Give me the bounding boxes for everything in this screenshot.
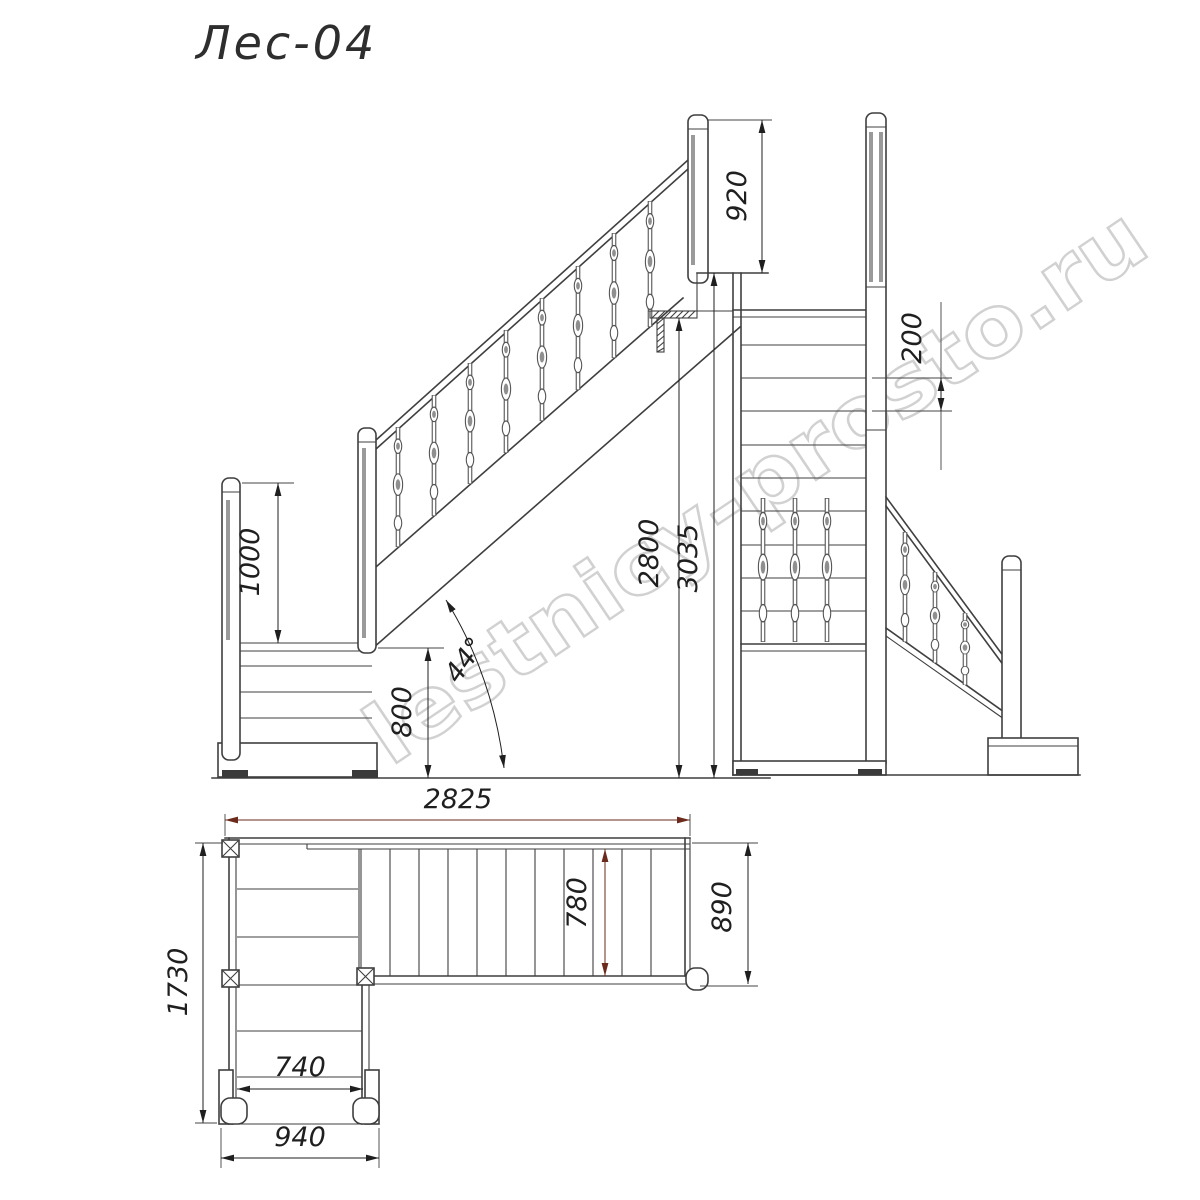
dimension-2825: 2825 xyxy=(225,784,690,836)
dimension-940: 940 xyxy=(221,1122,379,1168)
entry-newel-post xyxy=(1002,556,1021,746)
handrail xyxy=(376,160,688,449)
dim-label-800: 800 xyxy=(387,686,418,738)
drawing-sheet: Лес-04 lestnicy-prosto.ru xyxy=(0,0,1200,1200)
dimension-740: 740 xyxy=(237,1052,363,1089)
dim-label-1730: 1730 xyxy=(163,948,194,1017)
dimension-890: 890 xyxy=(692,843,758,986)
plan-main-flight xyxy=(225,838,708,990)
lower-flight-railing xyxy=(886,497,1004,719)
dim-label-2800: 2800 xyxy=(634,519,665,588)
balusters xyxy=(393,201,654,547)
top-newel xyxy=(688,115,708,283)
dim-label-2825: 2825 xyxy=(424,784,493,815)
dimension-780: 780 xyxy=(562,849,605,976)
dim-label-740: 740 xyxy=(274,1052,326,1083)
technical-drawing-svg: lestnicy-prosto.ru xyxy=(0,0,1200,1200)
plan-view: 2825 780 890 1730 740 xyxy=(163,784,758,1168)
plan-newel-markers xyxy=(222,840,374,987)
dimension-1000: 1000 xyxy=(235,483,294,643)
landing-newel-left xyxy=(222,478,240,760)
landing-newel-right xyxy=(358,428,376,653)
corner-newel-post xyxy=(866,113,886,770)
dim-label-3035: 3035 xyxy=(673,524,704,593)
dim-label-1000: 1000 xyxy=(235,528,266,597)
dimension-920: 920 xyxy=(708,120,772,273)
dim-label-200: 200 xyxy=(897,312,928,364)
dim-label-920: 920 xyxy=(722,170,753,222)
dim-label-940: 940 xyxy=(274,1122,326,1153)
dim-label-780: 780 xyxy=(562,877,593,929)
dimension-1730: 1730 xyxy=(163,843,223,1123)
base-structure xyxy=(733,738,1080,775)
dim-label-890: 890 xyxy=(707,881,738,933)
